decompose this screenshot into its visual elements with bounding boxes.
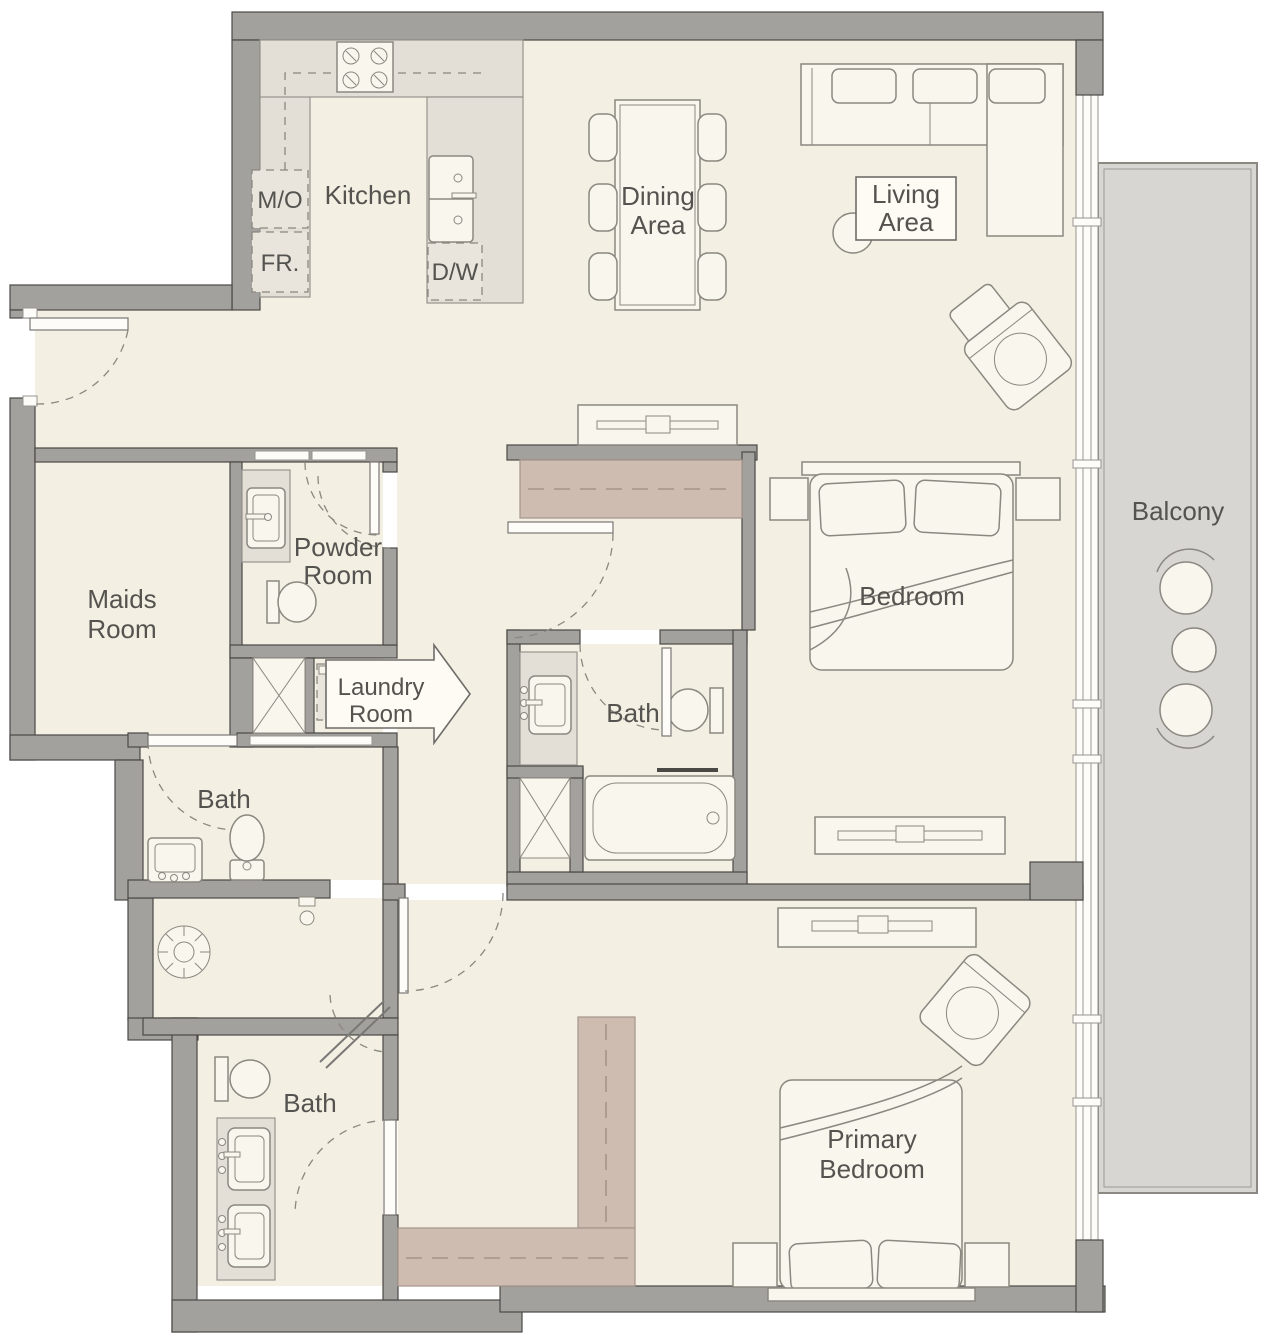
- balcony: Balcony: [1098, 163, 1257, 1193]
- shared-bath-toilet: [668, 688, 723, 733]
- kitchen-sink: [429, 156, 476, 242]
- dining-label-line1: Dining: [621, 181, 695, 211]
- laundry-label-line2: Room: [349, 701, 413, 728]
- dishwasher-box: D/W: [428, 243, 482, 300]
- laundry-room: Laundry Room: [253, 645, 470, 743]
- fridge-box: FR.: [252, 232, 308, 292]
- primary-tv-console: [778, 908, 976, 947]
- microwave-oven-label: M/O: [257, 187, 302, 214]
- maids-bath-toilet: [230, 815, 264, 880]
- fridge-label: FR.: [261, 250, 300, 277]
- balcony-label: Balcony: [1132, 496, 1225, 526]
- shared-bath-label: Bath: [606, 698, 660, 728]
- maids-label-line2: Room: [87, 614, 156, 644]
- bedroom-bed: [802, 462, 1020, 670]
- dining-label-line2: Area: [631, 210, 686, 240]
- laundry-label-line1: Laundry: [338, 674, 425, 701]
- window-wall: [1073, 95, 1101, 1240]
- powder-label-line2: Room: [303, 560, 372, 590]
- living-label-box: Living Area: [856, 177, 956, 240]
- floor-plan-svg: Balcony: [0, 0, 1268, 1335]
- bedroom-sideboard: [578, 405, 737, 445]
- powder-sink: [246, 488, 285, 548]
- kitchen-label: Kitchen: [325, 180, 412, 210]
- primary-bath-toilet: [215, 1057, 270, 1101]
- stove: [337, 42, 393, 92]
- primary-label-line1: Primary: [827, 1124, 917, 1154]
- nightstand-left: [770, 478, 808, 520]
- maids-bath-vanity: [148, 838, 202, 882]
- dining-area: Dining Area: [589, 100, 726, 310]
- microwave-oven-box: M/O: [252, 170, 308, 228]
- laundry-closet: [253, 658, 305, 733]
- living-label-line1: Living: [872, 179, 940, 209]
- bathtub: [585, 768, 735, 860]
- primary-label-line2: Bedroom: [819, 1154, 925, 1184]
- bedroom-label: Bedroom: [859, 581, 965, 611]
- primary-nightstand-left: [733, 1243, 777, 1287]
- maids-label-line1: Maids: [87, 584, 156, 614]
- living-label-line2: Area: [879, 207, 934, 237]
- towel-bar: [657, 768, 718, 772]
- bedroom-closet: [520, 460, 742, 518]
- shared-bath-closet: [520, 778, 570, 858]
- dishwasher-label: D/W: [432, 259, 479, 286]
- powder-label-line1: Powder: [294, 532, 382, 562]
- primary-nightstand-right: [965, 1243, 1009, 1287]
- nightstand-right: [1016, 478, 1060, 520]
- shower-drain: [158, 926, 210, 978]
- floor-plan: Balcony: [0, 0, 1268, 1335]
- maids-bath-label: Bath: [197, 784, 251, 814]
- bedroom-dresser: [815, 817, 1005, 854]
- balcony-side-table: [1172, 628, 1216, 672]
- primary-bath-label: Bath: [283, 1088, 337, 1118]
